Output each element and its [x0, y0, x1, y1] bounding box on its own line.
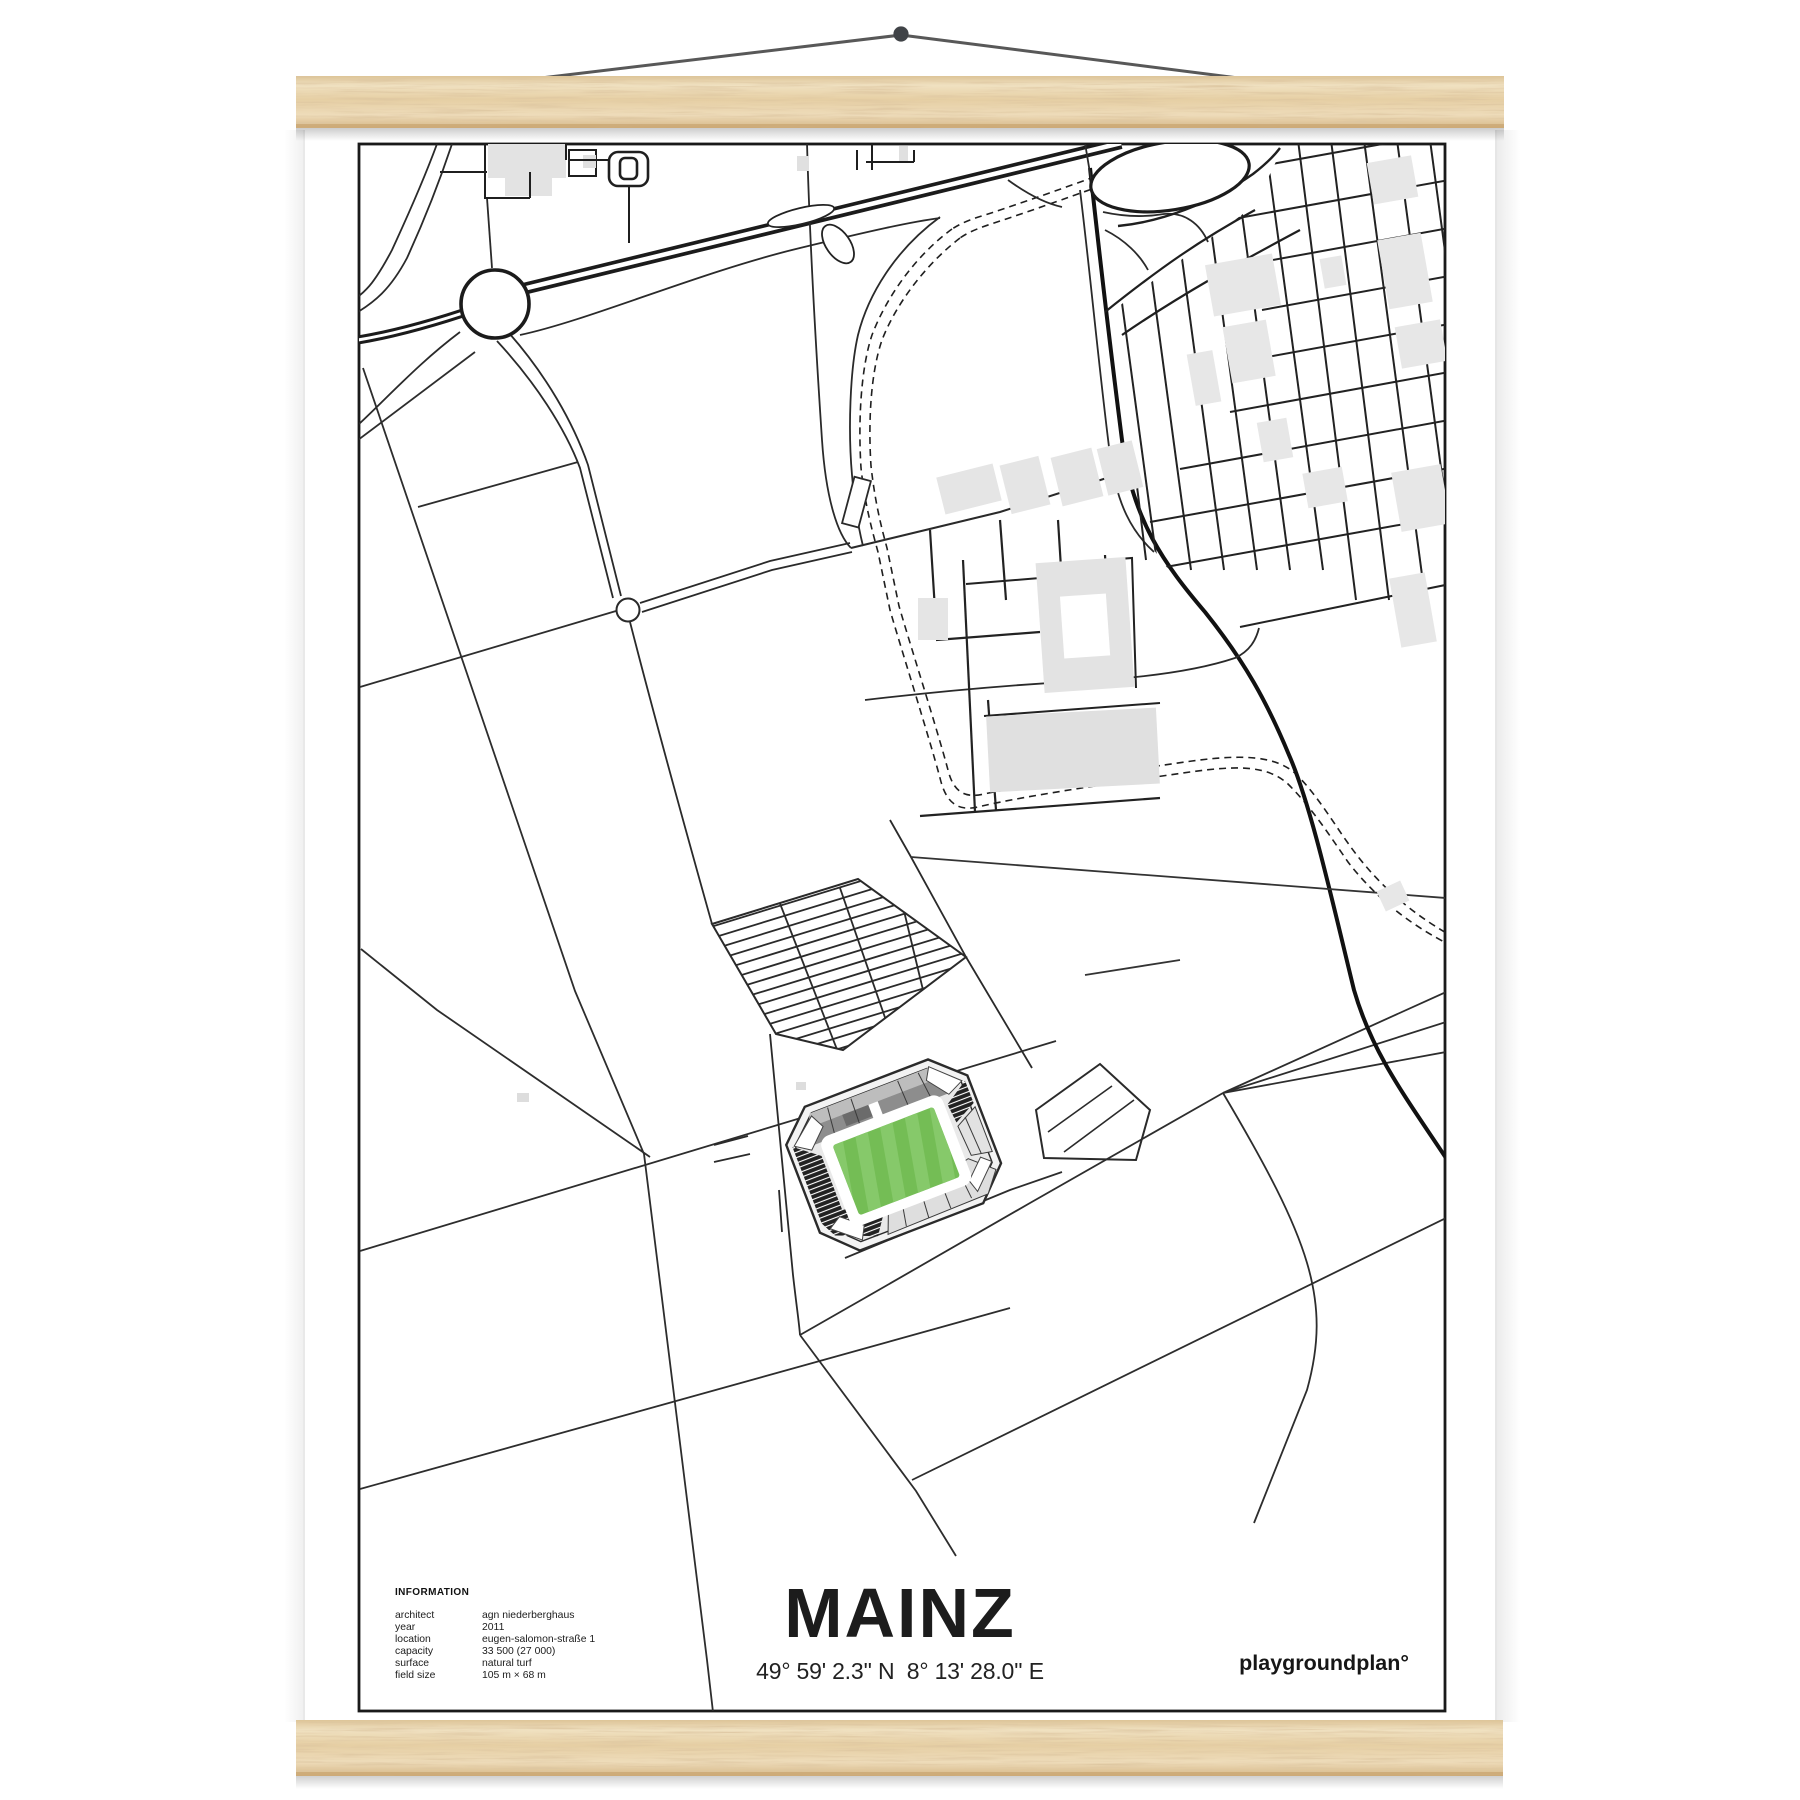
svg-text:natural turf: natural turf — [482, 1658, 532, 1669]
svg-text:location: location — [395, 1634, 431, 1645]
svg-text:INFORMATION: INFORMATION — [395, 1587, 469, 1598]
svg-text:eugen-salomon-straße 1: eugen-salomon-straße 1 — [482, 1634, 595, 1645]
svg-text:architect: architect — [395, 1610, 434, 1621]
svg-text:playgroundplan°: playgroundplan° — [1239, 1651, 1409, 1675]
svg-text:surface: surface — [395, 1658, 429, 1669]
svg-text:agn niederberghaus: agn niederberghaus — [482, 1610, 574, 1621]
svg-text:2011: 2011 — [482, 1622, 505, 1633]
svg-text:capacity: capacity — [395, 1646, 434, 1657]
svg-text:105 m × 68 m: 105 m × 68 m — [482, 1670, 546, 1681]
svg-text:MAINZ: MAINZ — [784, 1574, 1016, 1652]
svg-text:49° 59' 2.3'' N 8° 13' 28.0'': 49° 59' 2.3'' N 8° 13' 28.0'' E — [756, 1658, 1044, 1684]
svg-text:year: year — [395, 1622, 416, 1633]
svg-text:33 500 (27 000): 33 500 (27 000) — [482, 1646, 555, 1657]
svg-text:field size: field size — [395, 1670, 436, 1681]
